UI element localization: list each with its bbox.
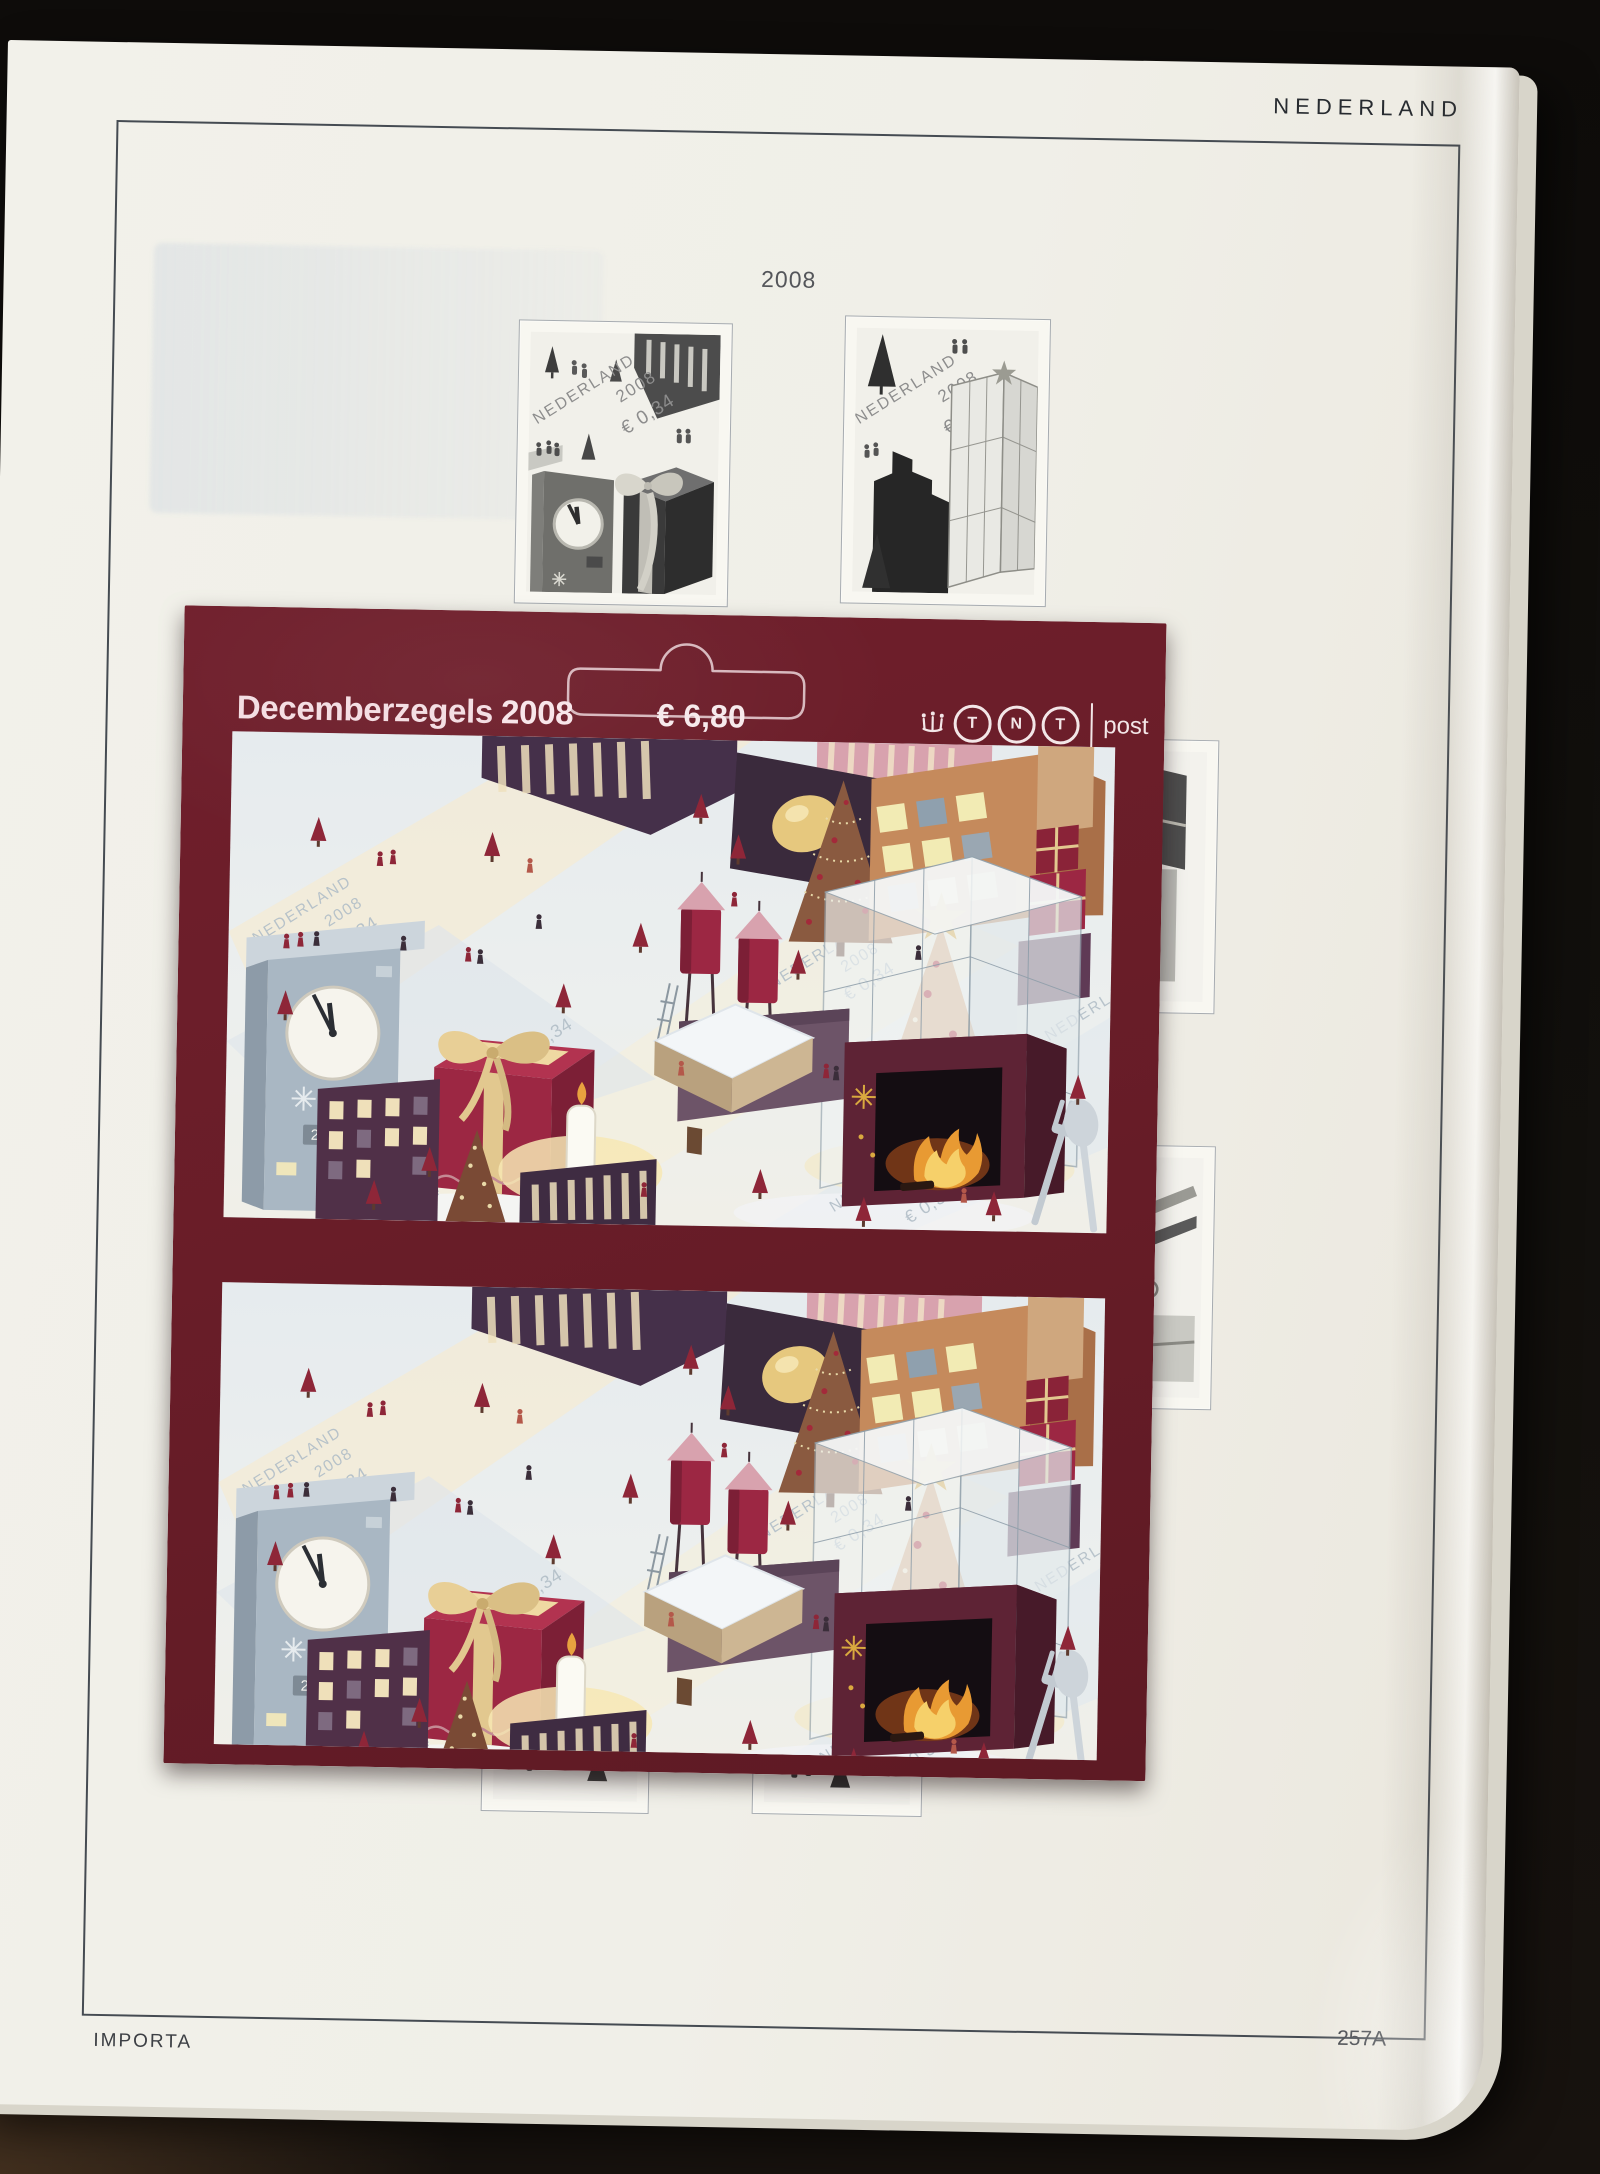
year-heading: 2008: [704, 265, 874, 295]
gray-stamp-art-glass-tower: NEDERLAND2008€ 0,34: [852, 328, 1039, 595]
country-title: NEDERLAND: [1247, 93, 1463, 123]
stamp-slot-clock-gift: NEDERLAND2008€ 0,34: [514, 319, 733, 607]
booklet-title: Decemberzegels2008: [236, 688, 573, 732]
stamp-slot-glass-tower: NEDERLAND2008€ 0,34: [840, 315, 1051, 607]
stamp-pane-top: [223, 731, 1115, 1233]
tnt-letter: T: [967, 715, 977, 733]
booklet-title-text: Decemberzegels: [236, 688, 493, 730]
stamp-pane-bottom: [214, 1282, 1105, 1760]
album-page: NEDERLAND 2008 NEDERLAND2008€ 0,34: [0, 40, 1520, 2131]
gray-stamp-art-clock-gift: NEDERLAND2008€ 0,34: [526, 332, 721, 595]
tnt-letter-circle: T: [953, 704, 992, 743]
logo-divider: [1090, 703, 1093, 749]
tnt-post-logo: T N T post: [917, 699, 1149, 751]
booklet-title-year: 2008: [501, 693, 574, 731]
tnt-crown-icon: [917, 708, 948, 739]
tnt-letter-circle: N: [997, 705, 1036, 744]
page-number: 257A: [1301, 2026, 1421, 2052]
photographed-album-page: NEDERLAND 2008 NEDERLAND2008€ 0,34: [0, 0, 1600, 2174]
stamp-booklet: Decemberzegels2008 € 6,80 T N T post: [163, 605, 1166, 1781]
tnt-letter: N: [1010, 715, 1022, 733]
tnt-letter-circle: T: [1041, 706, 1080, 745]
booklet-price: € 6,80: [656, 697, 746, 736]
tnt-letter: T: [1055, 716, 1065, 734]
publisher-label: IMPORTA: [93, 2030, 192, 2054]
post-label: post: [1103, 712, 1149, 741]
